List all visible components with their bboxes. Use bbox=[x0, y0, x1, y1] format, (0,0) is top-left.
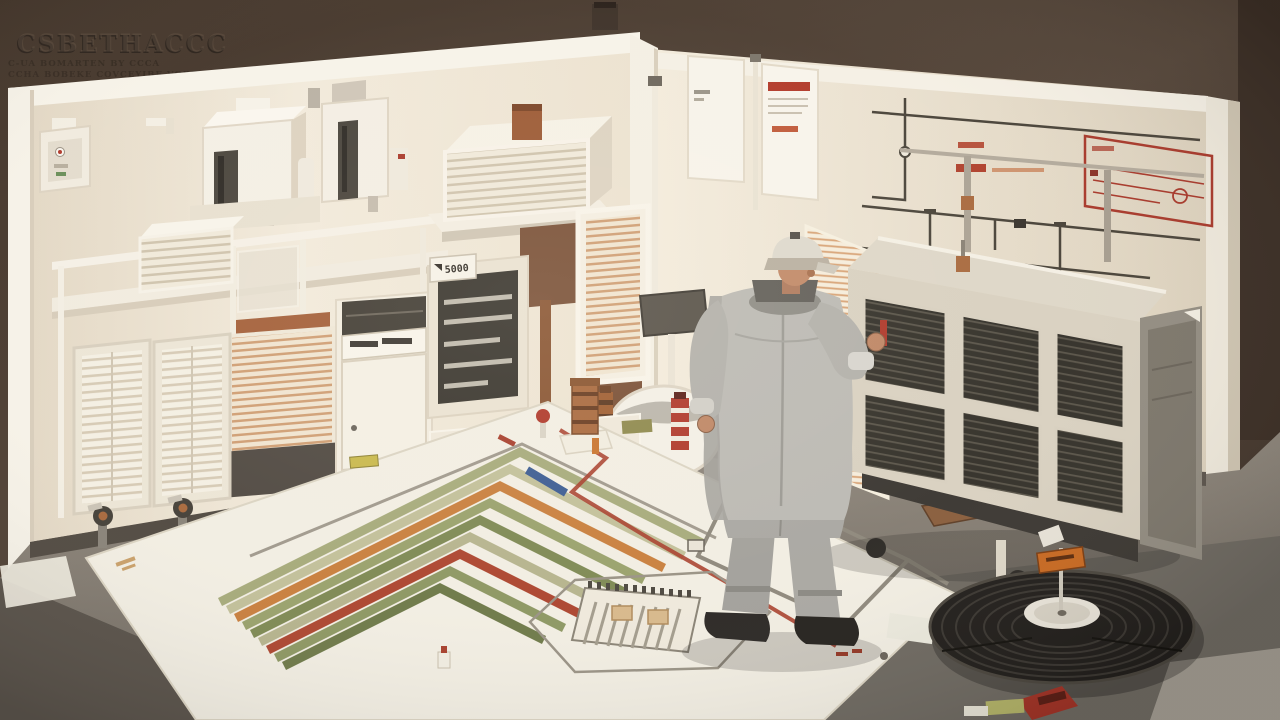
red-valve-cap bbox=[536, 409, 550, 423]
left-hand bbox=[698, 416, 715, 433]
copper-pipe-valve bbox=[961, 196, 974, 210]
shelf-post-1 bbox=[58, 266, 64, 518]
radiator-cabinet bbox=[222, 312, 342, 498]
pipe-tee-2 bbox=[1054, 222, 1066, 226]
shelf-glass-panel bbox=[238, 246, 298, 312]
green-pad bbox=[986, 699, 1025, 716]
radiator-front bbox=[230, 328, 334, 460]
scene-illustration: CSBETHACCC CSBETHACCC C-UA BOMARTEN BY C… bbox=[0, 0, 1280, 720]
green-mini-label bbox=[56, 172, 66, 176]
red-box-label bbox=[1092, 146, 1114, 151]
left-cuff bbox=[690, 398, 714, 414]
right-boot bbox=[794, 616, 859, 646]
left-post-shade bbox=[30, 90, 34, 570]
louver-front bbox=[445, 140, 588, 220]
wall-rod-1 bbox=[652, 84, 658, 300]
orange-mini-figure bbox=[592, 438, 599, 454]
right-dark-band bbox=[1238, 0, 1280, 440]
rod-cap-1 bbox=[648, 76, 662, 86]
poster-red-title bbox=[768, 82, 810, 91]
shelf-grille-box bbox=[140, 228, 232, 292]
olive-pouch bbox=[622, 419, 653, 434]
small-component-outline bbox=[688, 540, 704, 551]
yellow-block bbox=[350, 455, 379, 468]
unit-caster-1 bbox=[866, 538, 886, 558]
ear bbox=[807, 269, 815, 277]
rod-cap-2 bbox=[750, 54, 761, 62]
shelf-recess bbox=[520, 222, 585, 308]
red-box-tick bbox=[1090, 170, 1098, 176]
right-cuff bbox=[848, 352, 874, 370]
wall-sensor-cap bbox=[594, 2, 616, 8]
cabinet-door-knob bbox=[351, 425, 357, 431]
poster-plain bbox=[688, 56, 744, 182]
right-hand bbox=[867, 333, 885, 351]
unit-copper-valve bbox=[956, 256, 970, 272]
white-pad bbox=[964, 706, 988, 716]
dial-red-needle bbox=[58, 150, 62, 154]
embossed-subtitle-1: C-UA BOMARTEN BY CCCA bbox=[8, 59, 160, 69]
unit-side-box bbox=[1140, 306, 1202, 560]
glass-display-cabinet: 5000 bbox=[428, 254, 528, 418]
cap-button bbox=[790, 232, 800, 239]
heater-b-slot bbox=[338, 120, 358, 200]
red-striped-canister bbox=[671, 392, 689, 450]
poster-red-subtitle bbox=[772, 126, 798, 132]
embossed-title-highlight: CSBETHACCC bbox=[17, 29, 228, 58]
center-radiator-panel bbox=[578, 206, 648, 384]
wall-rod-2 bbox=[753, 60, 758, 210]
copper-box-on-shelf bbox=[512, 106, 542, 140]
pipe-junction-box bbox=[1014, 219, 1026, 228]
pipe-tee-1 bbox=[924, 209, 936, 213]
display-label-text: 5000 bbox=[444, 263, 469, 276]
workshop-diorama-svg: CSBETHACCC CSBETHACCC C-UA BOMARTEN BY C… bbox=[0, 0, 1280, 720]
